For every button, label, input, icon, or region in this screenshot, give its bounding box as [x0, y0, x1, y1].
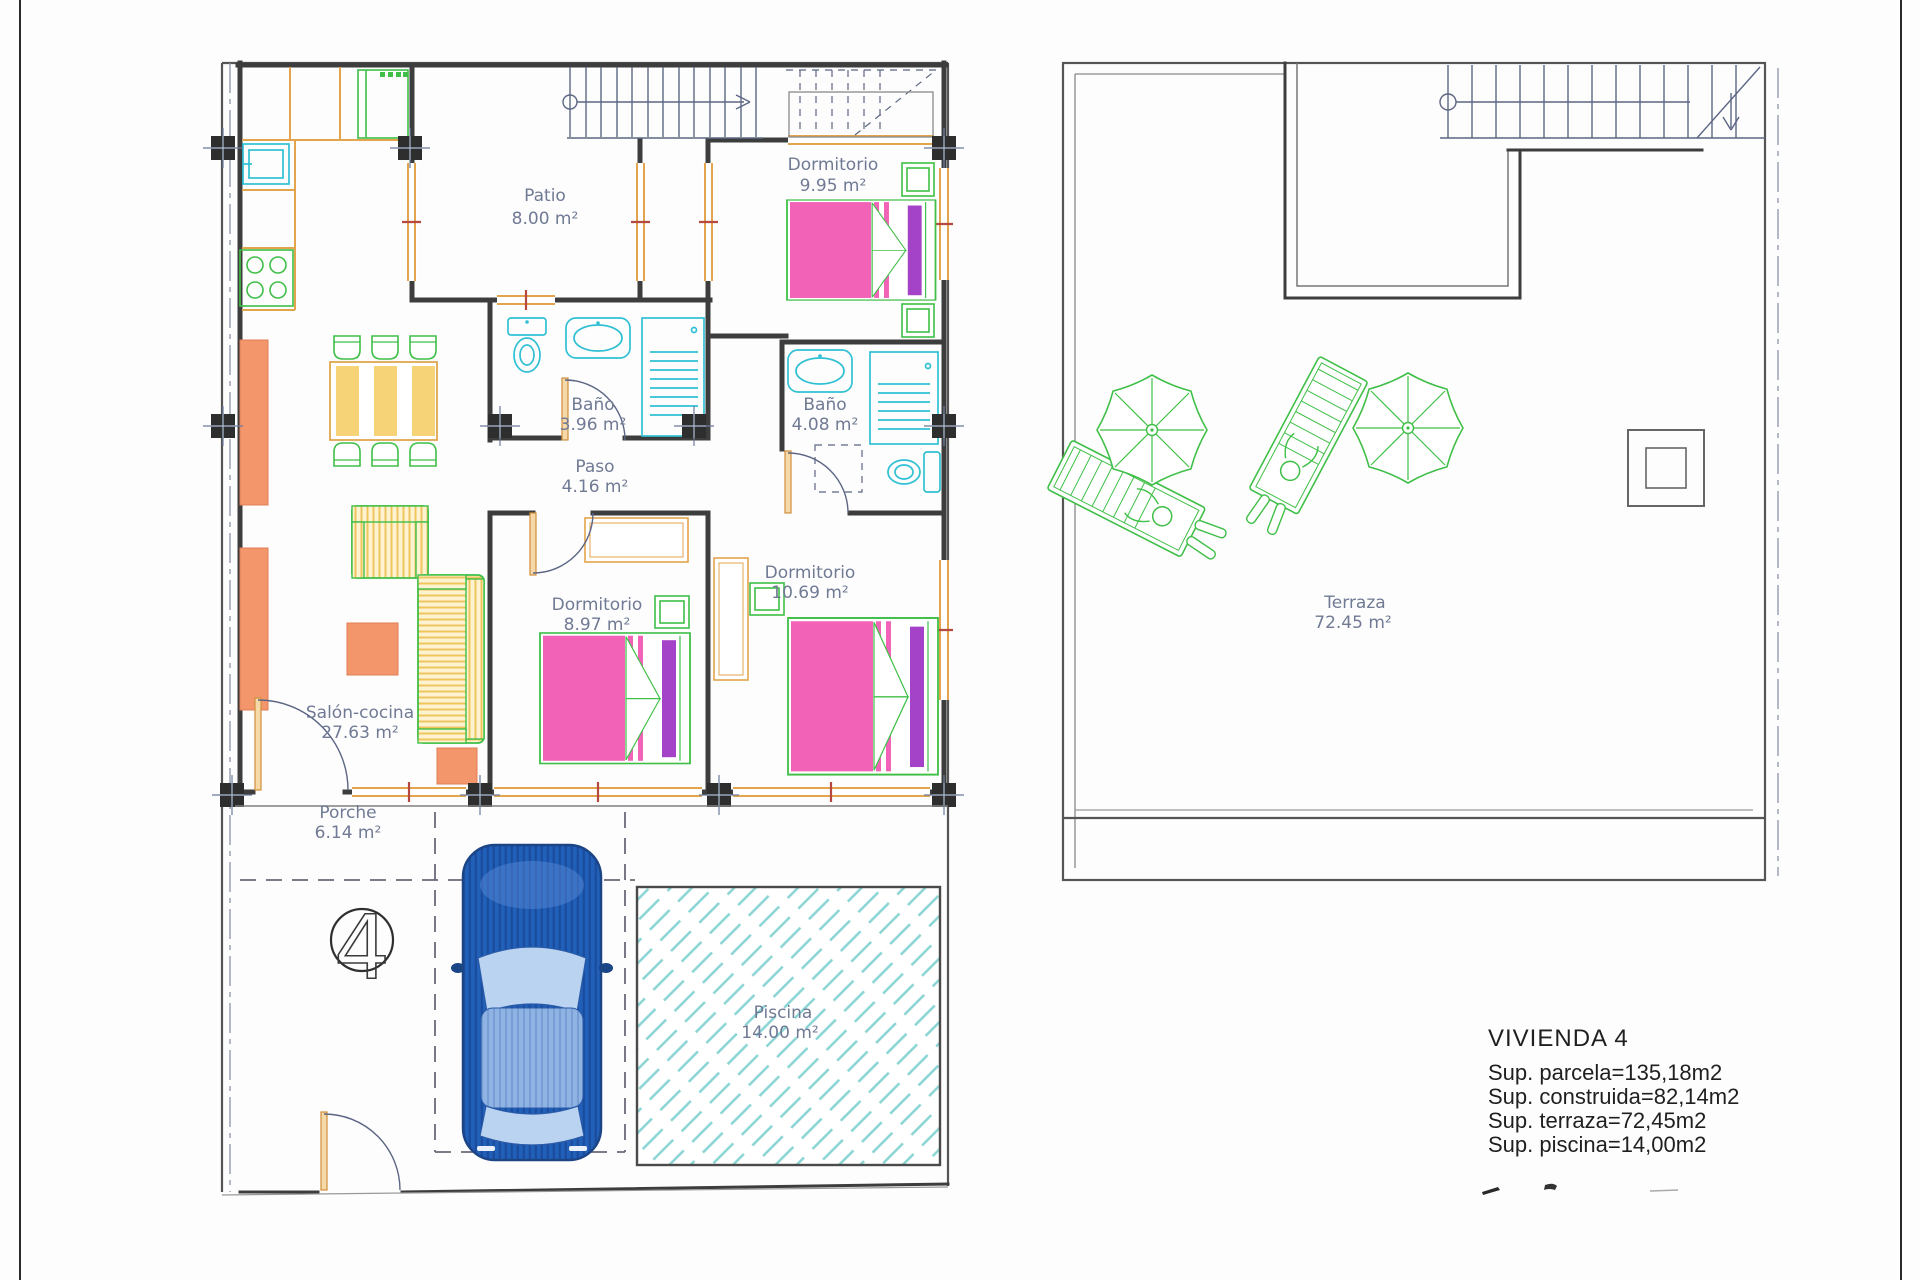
svg-text:4.16 m²: 4.16 m² — [562, 477, 629, 497]
chair — [410, 443, 436, 466]
ground-floor-plan: 4 Patio 8.00 m² Dormitorio 9.95 m² Baño … — [203, 63, 964, 1195]
svg-text:Dormitorio: Dormitorio — [765, 563, 856, 583]
dining-table — [330, 362, 437, 440]
svg-text:Terraza: Terraza — [1323, 593, 1385, 613]
surface-summary: VIVIENDA 4 Sup. parcela=135,18m2 Sup. co… — [1482, 1025, 1739, 1195]
svg-text:Baño: Baño — [571, 395, 614, 415]
summary-line: Sup. piscina=14,00m2 — [1488, 1132, 1706, 1157]
sun-lounger — [1235, 356, 1368, 541]
chair — [410, 336, 436, 359]
closet-dormitorio1 — [789, 92, 933, 137]
svg-text:Piscina: Piscina — [754, 1003, 813, 1023]
hob-icon — [240, 250, 293, 306]
chair — [334, 336, 360, 359]
svg-text:Salón-cocina: Salón-cocina — [306, 703, 414, 723]
washbasin-icon — [788, 350, 852, 392]
roof-terrace-plan: Terraza 72.45 m² — [1047, 63, 1778, 880]
double-bed — [787, 200, 936, 300]
unit-number-badge: 4 — [331, 896, 393, 999]
door-garden-gate — [321, 1112, 400, 1190]
svg-text:10.69 m²: 10.69 m² — [771, 583, 848, 603]
svg-text:27.63 m²: 27.63 m² — [321, 723, 398, 743]
svg-text:Patio: Patio — [524, 186, 566, 206]
shower-icon — [870, 352, 938, 444]
car — [451, 845, 613, 1160]
room-label-bano1: Baño 3.96 m² — [560, 395, 627, 435]
room-label-paso: Paso 4.16 m² — [562, 457, 629, 497]
front-yard: 4 — [235, 806, 948, 1165]
svg-text:4.08 m²: 4.08 m² — [792, 415, 859, 435]
double-bed — [788, 618, 938, 775]
summary-line: Sup. construida=82,14m2 — [1488, 1084, 1739, 1109]
svg-text:72.45 m²: 72.45 m² — [1314, 613, 1391, 633]
stairwell-walls — [1285, 63, 1520, 298]
staircase — [563, 67, 938, 138]
washbasin-icon — [566, 318, 630, 358]
double-bed — [540, 633, 690, 764]
sideboard — [240, 548, 268, 710]
door-dormitorio3 — [785, 451, 848, 513]
summary-title: VIVIENDA 4 — [1488, 1025, 1629, 1052]
room-label-dormitorio1: Dormitorio 9.95 m² — [788, 155, 879, 196]
parasol-icon — [1353, 373, 1463, 483]
roof-staircase — [1440, 65, 1765, 138]
side-table — [437, 748, 477, 784]
summary-line: Sup. parcela=135,18m2 — [1488, 1060, 1722, 1085]
toilet-icon — [888, 452, 940, 492]
sofa — [418, 575, 484, 743]
cropped-marks — [1482, 1184, 1678, 1195]
chair — [372, 336, 398, 359]
room-label-porche: Porche 6.14 m² — [315, 803, 382, 843]
parasol-icon — [1097, 375, 1207, 485]
skylight — [1628, 430, 1704, 506]
floor-plan-sheet: 4 Patio 8.00 m² Dormitorio 9.95 m² Baño … — [0, 0, 1920, 1280]
coffee-table — [347, 623, 398, 675]
room-label-dormitorio2: Dormitorio 8.97 m² — [552, 595, 643, 635]
door-dormitorio2 — [530, 513, 593, 575]
sink-icon — [243, 144, 289, 184]
svg-text:6.14 m²: 6.14 m² — [315, 823, 382, 843]
closet-dormitorio3 — [714, 558, 748, 680]
svg-text:14.00 m²: 14.00 m² — [741, 1023, 818, 1043]
svg-text:9.95 m²: 9.95 m² — [800, 176, 867, 196]
room-label-salon: Salón-cocina 27.63 m² — [306, 703, 414, 743]
chair — [372, 443, 398, 466]
chair — [334, 443, 360, 466]
plan-drawing: 4 Patio 8.00 m² Dormitorio 9.95 m² Baño … — [0, 0, 1920, 1280]
svg-text:Baño: Baño — [803, 395, 846, 415]
svg-text:3.96 m²: 3.96 m² — [560, 415, 627, 435]
toilet-icon — [508, 318, 546, 372]
room-label-patio: Patio 8.00 m² — [512, 186, 579, 229]
room-label-bano2: Baño 4.08 m² — [792, 395, 859, 435]
svg-text:8.00 m²: 8.00 m² — [512, 209, 579, 229]
svg-text:Dormitorio: Dormitorio — [552, 595, 643, 615]
shower-mat — [815, 445, 862, 492]
armchair — [352, 506, 428, 578]
room-label-terraza: Terraza 72.45 m² — [1314, 593, 1391, 633]
terrace-furniture — [1047, 356, 1463, 571]
kitchen-counter — [240, 67, 412, 310]
room-label-dormitorio3: Dormitorio 10.69 m² — [765, 563, 856, 603]
svg-text:8.97 m²: 8.97 m² — [564, 615, 631, 635]
room-label-piscina: Piscina 14.00 m² — [741, 1003, 818, 1043]
unit-number: 4 — [334, 896, 390, 999]
svg-text:Dormitorio: Dormitorio — [788, 155, 879, 175]
svg-text:Porche: Porche — [319, 803, 376, 823]
closet-dormitorio2 — [585, 518, 688, 562]
sideboard — [240, 340, 268, 505]
svg-text:Paso: Paso — [575, 457, 614, 477]
summary-line: Sup. terraza=72,45m2 — [1488, 1108, 1706, 1133]
